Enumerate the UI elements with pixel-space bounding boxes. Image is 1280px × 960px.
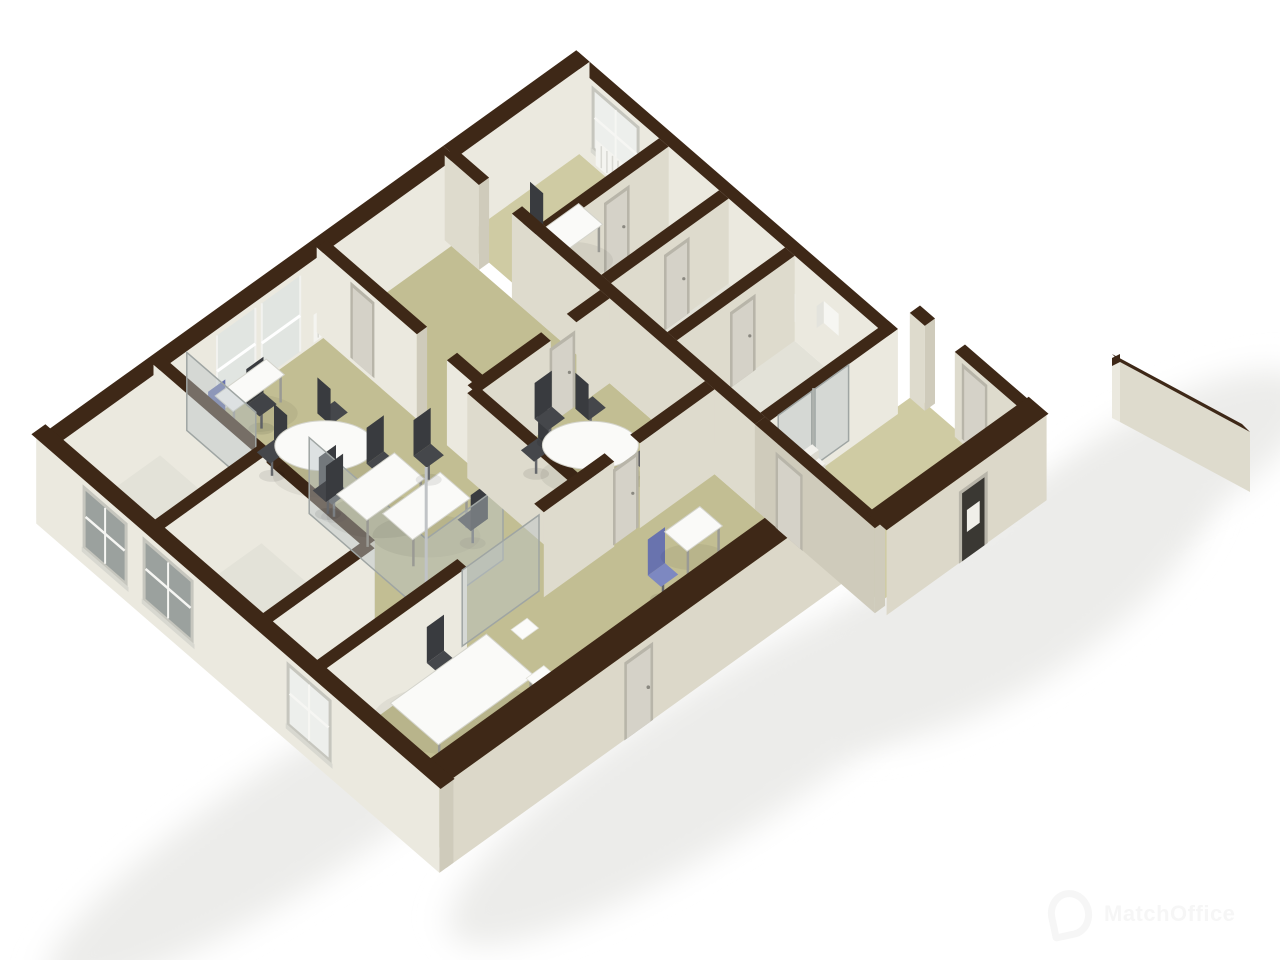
- watermark-text: MatchOffice: [1104, 901, 1235, 927]
- annex-ne-wall: [910, 306, 935, 411]
- floorplan-canvas: MatchOffice: [0, 0, 1280, 960]
- watermark-logo-icon: [1043, 886, 1096, 942]
- watermark: MatchOffice: [1048, 890, 1235, 938]
- floorplan-3d-scene: [0, 0, 1280, 960]
